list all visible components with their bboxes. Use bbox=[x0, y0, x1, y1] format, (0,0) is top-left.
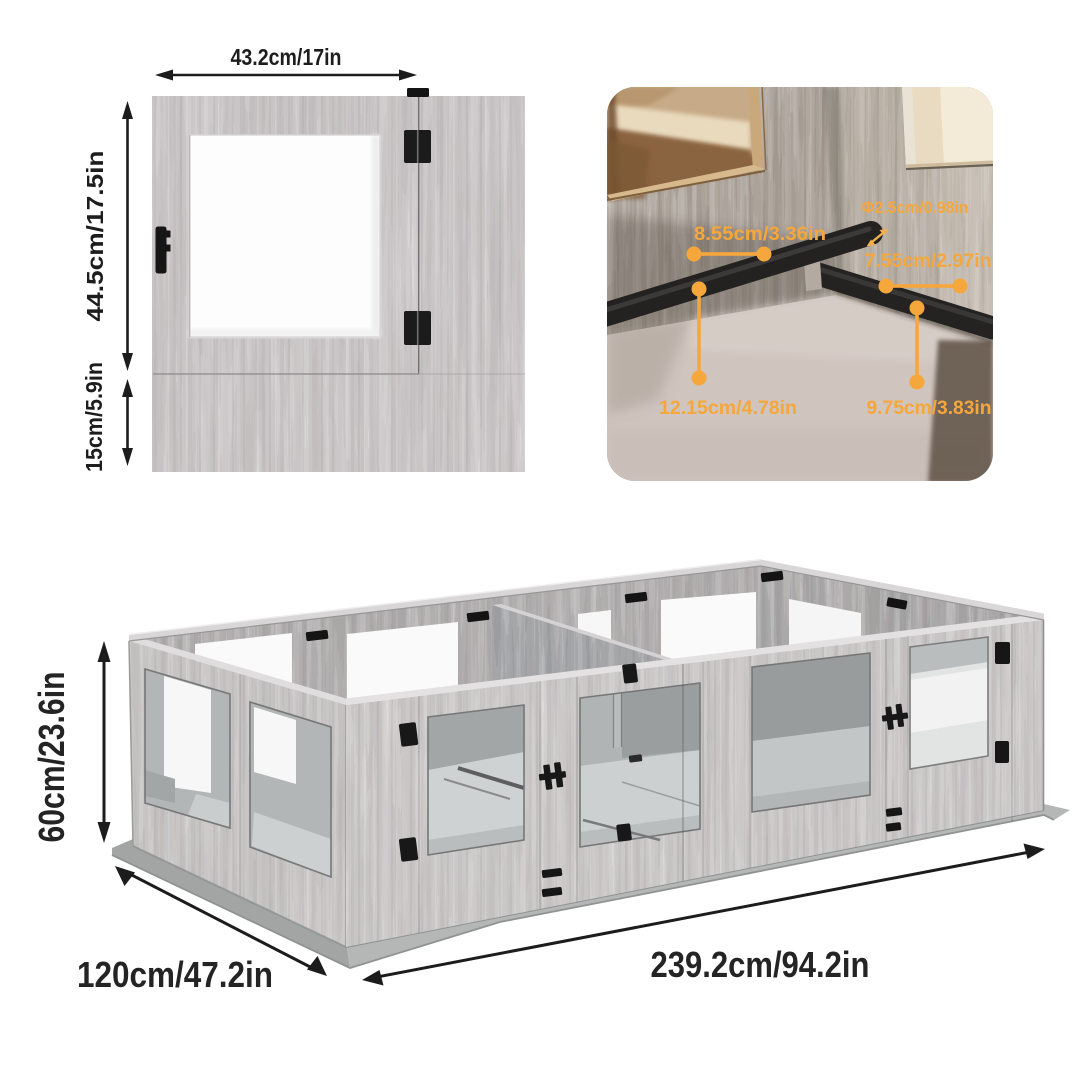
svg-text:15cm/5.9in: 15cm/5.9in bbox=[81, 362, 107, 472]
svg-text:239.2cm/94.2in: 239.2cm/94.2in bbox=[651, 944, 870, 985]
svg-text:7.55cm/2.97in: 7.55cm/2.97in bbox=[865, 250, 992, 272]
svg-text:43.2cm/17in: 43.2cm/17in bbox=[231, 44, 342, 70]
svg-text:60cm/23.6in: 60cm/23.6in bbox=[31, 672, 72, 843]
svg-text:120cm/47.2in: 120cm/47.2in bbox=[77, 954, 273, 995]
svg-text:12.15cm/4.78in: 12.15cm/4.78in bbox=[659, 397, 797, 419]
svg-text:8.55cm/3.36in: 8.55cm/3.36in bbox=[694, 223, 826, 245]
svg-text:Φ2.5cm/0.98in: Φ2.5cm/0.98in bbox=[862, 198, 969, 217]
svg-text:9.75cm/3.83in: 9.75cm/3.83in bbox=[867, 397, 992, 419]
svg-text:44.5cm/17.5in: 44.5cm/17.5in bbox=[82, 151, 108, 322]
